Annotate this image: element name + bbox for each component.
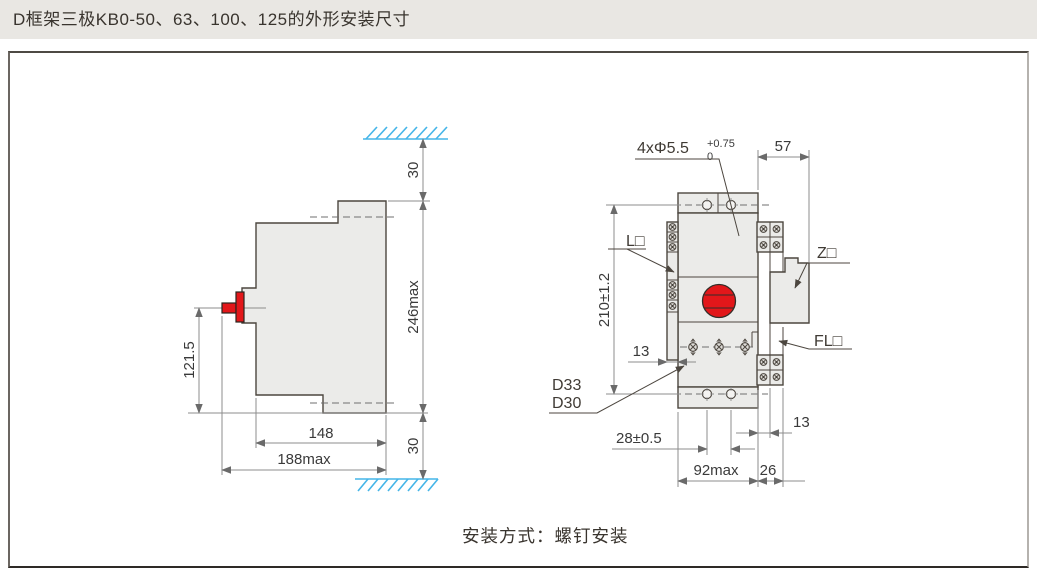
dim-height-max: 246max — [405, 280, 422, 334]
left-terminal-strip — [667, 222, 678, 360]
bottom-obstacle-hatch — [355, 479, 438, 491]
svg-text:4xΦ5.5: 4xΦ5.5 — [637, 140, 689, 157]
dim-top-clearance: 30 — [405, 162, 422, 179]
svg-text:0: 0 — [707, 151, 713, 163]
svg-text:Z□: Z□ — [817, 245, 837, 262]
mounting-method-caption: 安装方式：螺钉安装 — [462, 523, 629, 548]
bottom-mounting-flange — [678, 387, 758, 408]
label-fl: FL□ — [779, 333, 852, 350]
side-view: 121.5 148 188max 30 246max 30 — [181, 127, 448, 491]
svg-text:210±1.2: 210±1.2 — [596, 273, 613, 327]
dim-bottom-clearance: 30 — [405, 438, 422, 455]
dim-handle-height: 121.5 — [181, 308, 199, 413]
dim-side-width: 26 — [760, 462, 777, 479]
dim-hole-hspacing: 28±0.5 — [612, 410, 755, 455]
svg-text:13: 13 — [633, 343, 650, 360]
svg-text:L□: L□ — [626, 233, 645, 250]
svg-text:121.5: 121.5 — [181, 341, 198, 379]
svg-text:188max: 188max — [277, 451, 331, 468]
right-lower-terminal-block — [757, 355, 783, 385]
stop-button — [703, 285, 736, 318]
svg-text:13: 13 — [793, 414, 810, 431]
svg-text:D30: D30 — [552, 395, 581, 412]
svg-text:+0.75: +0.75 — [707, 138, 735, 150]
svg-text:FL□: FL□ — [814, 333, 843, 350]
front-view: 4xΦ5.5 +0.75 0 57 210±1.2 13 D — [549, 138, 852, 487]
svg-text:92max: 92max — [693, 462, 739, 479]
svg-text:28±0.5: 28±0.5 — [616, 430, 662, 447]
svg-text:148: 148 — [308, 425, 333, 442]
installation-dimension-drawing: 121.5 148 188max 30 246max 30 — [0, 0, 1037, 575]
top-obstacle-hatch — [363, 127, 448, 139]
dim-vertical-chain: 30 246max 30 — [388, 139, 430, 479]
frame-size-callout: D33 D30 — [549, 366, 684, 413]
z-attachment — [770, 258, 809, 323]
label-l: L□ — [608, 233, 674, 272]
svg-text:D33: D33 — [552, 377, 581, 394]
svg-text:57: 57 — [775, 138, 792, 155]
breaker-side-profile — [242, 201, 386, 413]
